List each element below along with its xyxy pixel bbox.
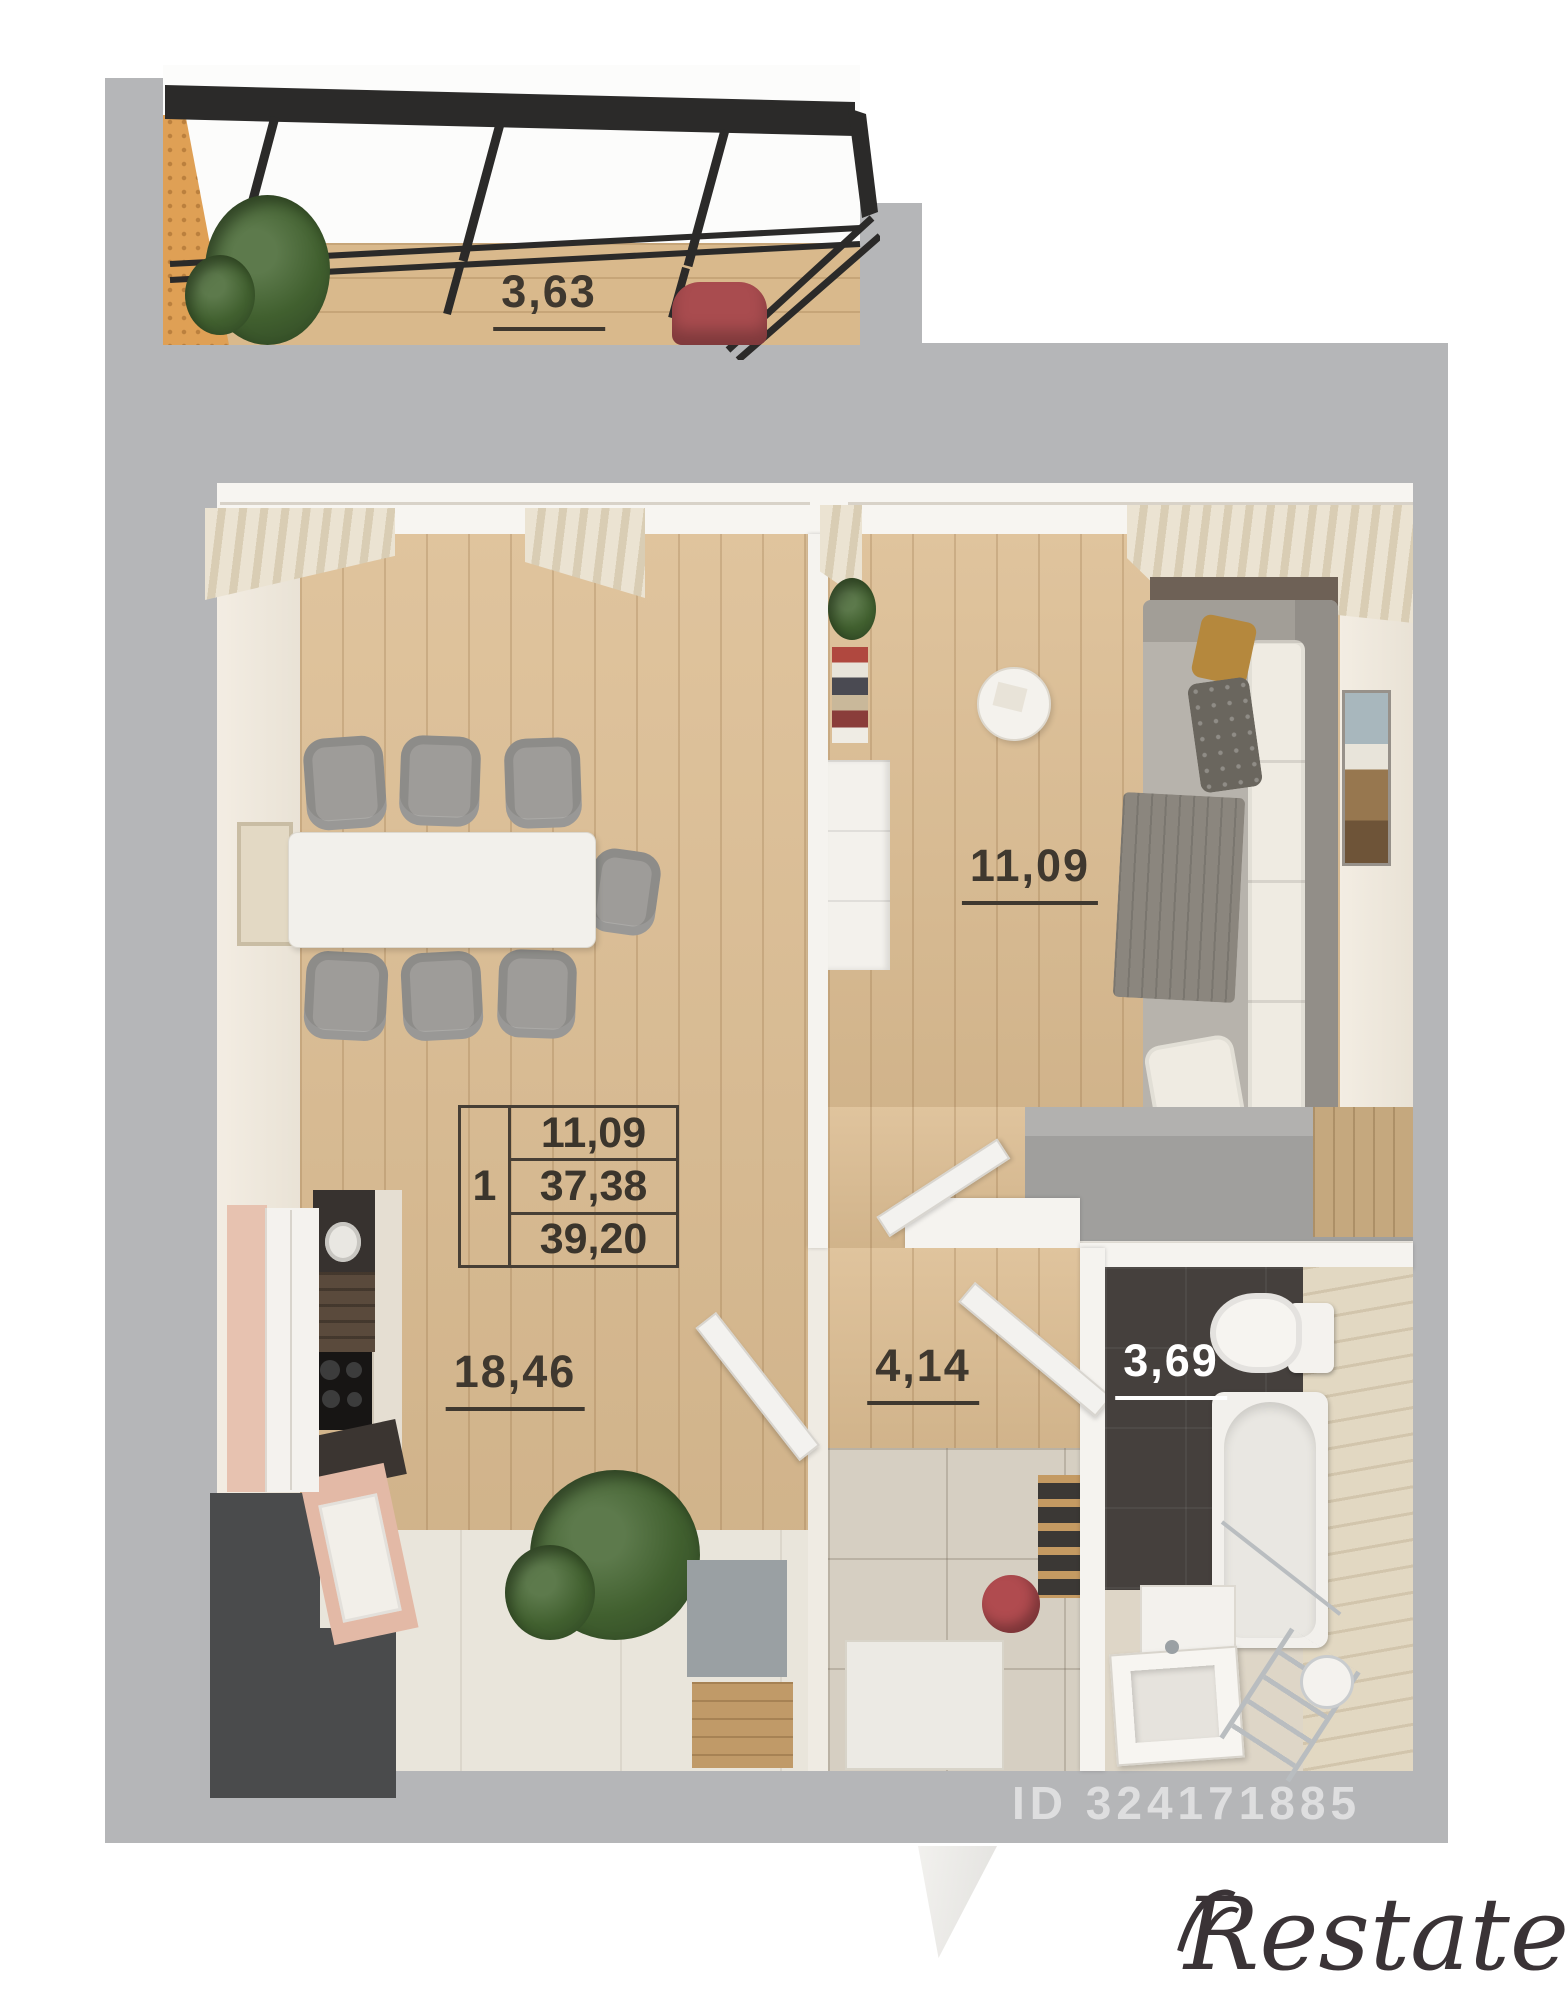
brand-logo: Restate: [1168, 1885, 1565, 1985]
summary-living-area-cell: 11,09: [511, 1108, 676, 1158]
cooktop-burner: [322, 1390, 340, 1408]
dining-table: [288, 832, 596, 948]
hall-bath-wall: [1080, 1248, 1105, 1771]
watermark-id: ID 324171885: [1012, 1776, 1361, 1830]
summary-total-area-cell: 39,20: [511, 1212, 676, 1265]
kitchen-counter-wood: [313, 1272, 375, 1352]
area-summary-table: 1 11,09 37,38 39,20: [458, 1105, 679, 1268]
floor-plan: 3,63 1 11,09 37,38 39,20: [0, 0, 1565, 2000]
bath-round-fixture: [1300, 1655, 1354, 1709]
living-curtain-rail: [848, 502, 1413, 505]
bathtub-inner: [1224, 1402, 1316, 1638]
bath-sink-basin: [1131, 1665, 1220, 1743]
dining-chair: [496, 949, 577, 1040]
pouf-red: [982, 1575, 1040, 1633]
dining-chair: [584, 846, 663, 939]
sofa-throw-blanket: [1113, 792, 1246, 1003]
storage-cube-gray: [687, 1560, 787, 1677]
dining-chair: [503, 737, 582, 830]
dining-chair: [303, 950, 389, 1042]
balcony-area-label: 3,63: [493, 266, 605, 331]
kitchen-area-label: 18,46: [446, 1346, 585, 1411]
kitchen-plant-leaf: [505, 1545, 595, 1640]
cabinet-door-seam: [290, 1210, 292, 1490]
entry-door-leaf: [918, 1846, 997, 1958]
book-stack: [832, 647, 868, 743]
living-area-label: 11,09: [962, 840, 1098, 905]
kitchen-cabinet-pink-side: [227, 1205, 267, 1492]
dining-chair: [302, 734, 388, 831]
doormat: [845, 1640, 1004, 1770]
bath-area-label: 3,69: [1115, 1335, 1227, 1400]
drawer-unit: [828, 760, 890, 970]
cooktop-burner: [346, 1362, 362, 1378]
summary-apartment-area-cell: 37,38: [511, 1158, 676, 1211]
sofa-pillow-column: [1248, 640, 1305, 1120]
brand-logo-text: Restate: [1184, 1885, 1565, 1985]
balcony-plant-leaf: [185, 255, 255, 335]
dining-chair: [398, 735, 481, 828]
shelf-plant: [828, 578, 876, 640]
wall-painting: [1342, 690, 1391, 866]
kitchen-base-cabinet-dark: [320, 1628, 396, 1798]
sink-faucet: [1165, 1640, 1179, 1654]
cooktop-burner: [320, 1360, 340, 1380]
storage-cube-wood: [692, 1682, 793, 1768]
wall-top-left-strip: [105, 78, 163, 344]
kitchen-sink: [325, 1222, 361, 1262]
shoe-bench: [1038, 1475, 1084, 1598]
bathroom-top-wall: [1080, 1243, 1413, 1270]
divider-wall: [808, 534, 828, 1248]
cooktop-burner: [347, 1392, 362, 1407]
wall-art-frame: [237, 822, 293, 946]
summary-rooms-cell: 1: [461, 1108, 511, 1265]
hall-area-label: 4,14: [867, 1340, 979, 1405]
wardrobe-wood-section: [1313, 1107, 1413, 1237]
kitchen-cabinet-white-doors: [265, 1208, 319, 1492]
kitchen-base-cabinet-dark: [210, 1493, 320, 1798]
dining-chair: [400, 950, 484, 1042]
balcony-armchair-red: [672, 282, 767, 345]
kitchen-curtain-rail: [220, 502, 810, 505]
